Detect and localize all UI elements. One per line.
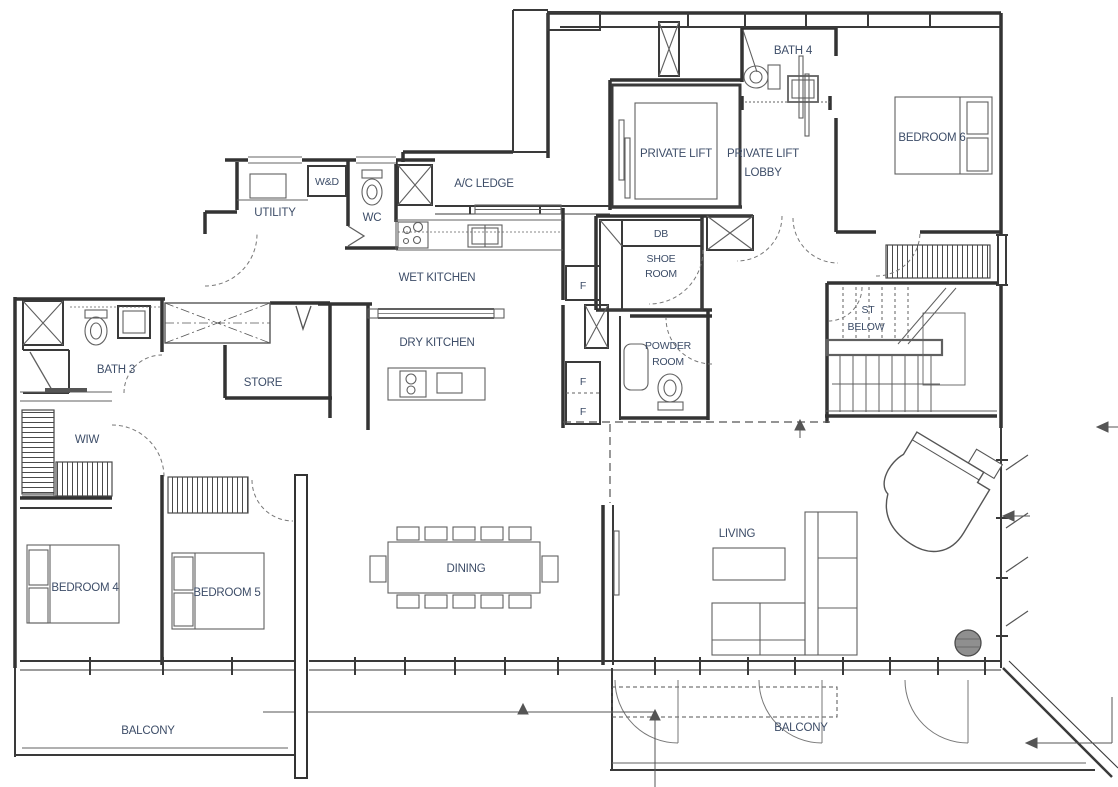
coffee-table (713, 548, 785, 580)
label-living: LIVING (719, 528, 756, 540)
label-utility: UTILITY (254, 207, 296, 219)
label-bedroom5: BEDROOM 5 (193, 587, 260, 599)
bedroom5-wardrobe (168, 477, 248, 513)
label-balcony-left: BALCONY (121, 725, 175, 737)
label-powder-1: POWDER (645, 340, 692, 352)
cooktop (398, 222, 428, 248)
utility-washer (250, 174, 286, 198)
v-door-symbol (296, 306, 311, 329)
bedroom6-wardrobe (886, 245, 990, 278)
label-private-lift: PRIVATE LIFT (640, 148, 712, 160)
label-st-2: BELOW (848, 321, 885, 333)
pass-counter (368, 309, 504, 318)
arrow-left-bottom (1026, 738, 1037, 748)
floor-plan-drawing: BATH 4 BEDROOM 6 PRIVATE LIFT PRIVATE LI… (0, 0, 1118, 787)
label-dining: DINING (446, 563, 485, 575)
party-wall (295, 475, 307, 778)
shower-door (30, 352, 52, 390)
round-column (955, 630, 981, 656)
label-balcony-right: BALCONY (774, 722, 828, 734)
label-db: DB (654, 228, 668, 240)
tv-panel (614, 531, 619, 595)
section-arrow-up-1 (518, 704, 528, 714)
label-f2: F (580, 376, 586, 388)
label-shoe-1: SHOE (647, 253, 676, 265)
label-f1: F (580, 280, 586, 292)
label-bedroom4: BEDROOM 4 (51, 582, 119, 594)
lobby-door-arc-right (793, 218, 838, 263)
staircase (825, 287, 997, 412)
label-wd: W&D (315, 176, 340, 188)
label-store: STORE (244, 377, 283, 389)
label-shoe-2: ROOM (645, 268, 677, 280)
utility-door-arc (205, 234, 257, 286)
label-powder-2: ROOM (652, 356, 684, 368)
bath3-toilet (85, 310, 107, 345)
bath4-toilet (744, 65, 780, 89)
label-bath3: BATH 3 (97, 364, 135, 376)
label-f3: F (580, 406, 586, 418)
powder-toilet (658, 374, 683, 410)
arrow-left-mid (1003, 511, 1014, 521)
wiw-wardrobe-left (22, 410, 54, 494)
stairs-door-arc (828, 287, 862, 321)
vent-ticks (1006, 455, 1028, 626)
overhead-cabinet (165, 303, 311, 343)
label-private-lift-lobby-2: LOBBY (744, 167, 782, 179)
label-private-lift-lobby-1: PRIVATE LIFT (727, 148, 799, 160)
arrow-left-edge (1097, 422, 1108, 432)
wiw-wardrobe-bottom (56, 462, 112, 496)
label-dry-kitchen: DRY KITCHEN (399, 337, 474, 349)
wc-bifold-door (348, 226, 364, 246)
label-bedroom6: BEDROOM 6 (898, 132, 965, 144)
label-wc: WC (363, 212, 382, 224)
wet-kitchen-counter (396, 220, 563, 250)
label-st-1: ST (861, 304, 875, 316)
wardrobes (22, 245, 990, 513)
label-wiw: WIW (75, 434, 100, 446)
label-bath4: BATH 4 (774, 45, 813, 57)
wc-toilet (362, 170, 382, 205)
label-ac-ledge: A/C LEDGE (454, 178, 514, 190)
floor-plan-page: BATH 4 BEDROOM 6 PRIVATE LIFT PRIVATE LI… (0, 0, 1118, 787)
wiw-door-arc (112, 425, 164, 477)
grand-piano (862, 416, 1004, 565)
door-swings (112, 216, 920, 521)
entry-arrow-up (795, 420, 805, 438)
label-wet-kitchen: WET KITCHEN (399, 272, 476, 284)
dry-kitchen-island (388, 368, 485, 400)
bedroom5-door-arc (252, 480, 293, 521)
